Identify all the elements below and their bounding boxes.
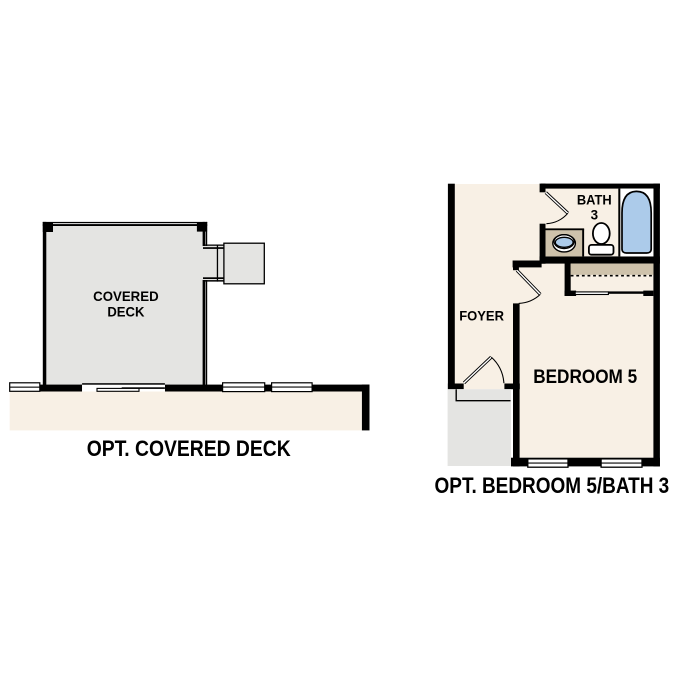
svg-text:DECK: DECK bbox=[107, 305, 144, 320]
svg-text:OPT. COVERED DECK: OPT. COVERED DECK bbox=[87, 436, 291, 461]
svg-text:BATH: BATH bbox=[577, 193, 612, 208]
svg-text:3: 3 bbox=[591, 208, 598, 223]
svg-text:BEDROOM 5: BEDROOM 5 bbox=[533, 366, 637, 388]
svg-text:FOYER: FOYER bbox=[459, 307, 504, 323]
svg-text:COVERED: COVERED bbox=[93, 289, 159, 304]
svg-text:OPT. BEDROOM 5/BATH 3: OPT. BEDROOM 5/BATH 3 bbox=[435, 473, 670, 498]
